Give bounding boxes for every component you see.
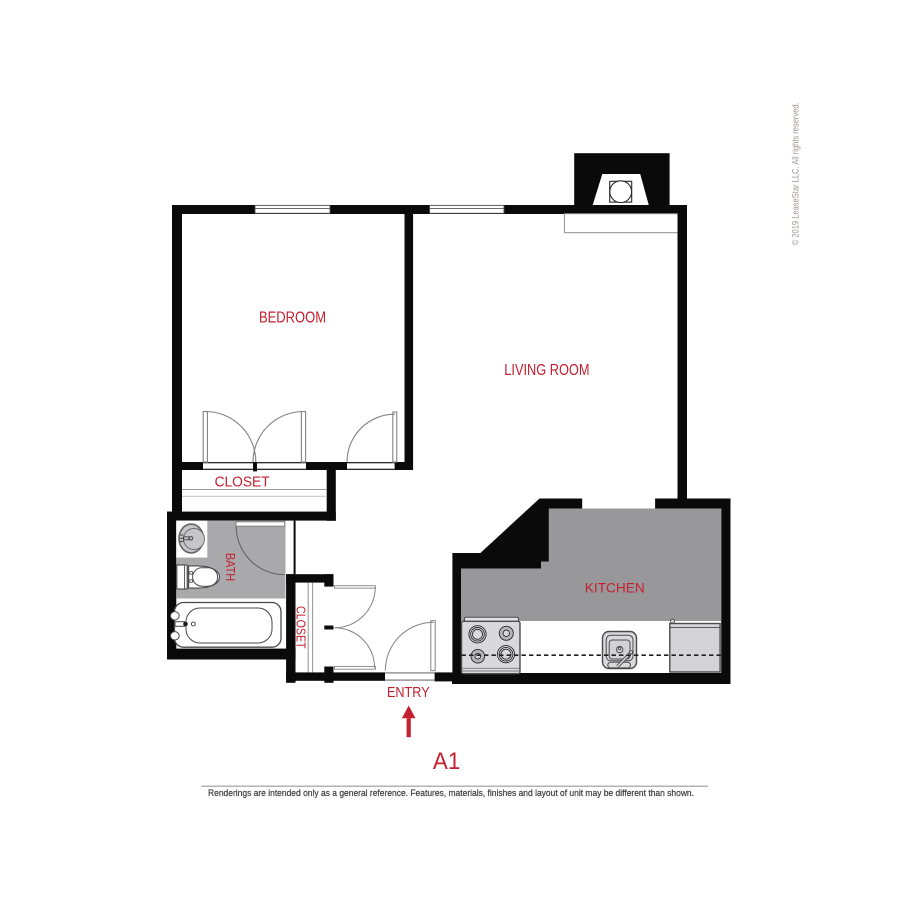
svg-text:CLOSET: CLOSET	[294, 606, 309, 649]
svg-text:A1: A1	[433, 748, 460, 775]
svg-text:BATH: BATH	[223, 553, 238, 581]
svg-text:KITCHEN: KITCHEN	[585, 580, 645, 595]
svg-text:LIVING ROOM: LIVING ROOM	[504, 362, 589, 379]
svg-text:BEDROOM: BEDROOM	[259, 310, 326, 327]
svg-text:CLOSET: CLOSET	[215, 474, 270, 491]
svg-text:ENTRY: ENTRY	[387, 685, 430, 701]
svg-text:© 2019 LeaseStar LLC. All righ: © 2019 LeaseStar LLC. All rights reserve…	[791, 102, 801, 245]
svg-text:Renderings are intended only a: Renderings are intended only as a genera…	[208, 788, 694, 798]
